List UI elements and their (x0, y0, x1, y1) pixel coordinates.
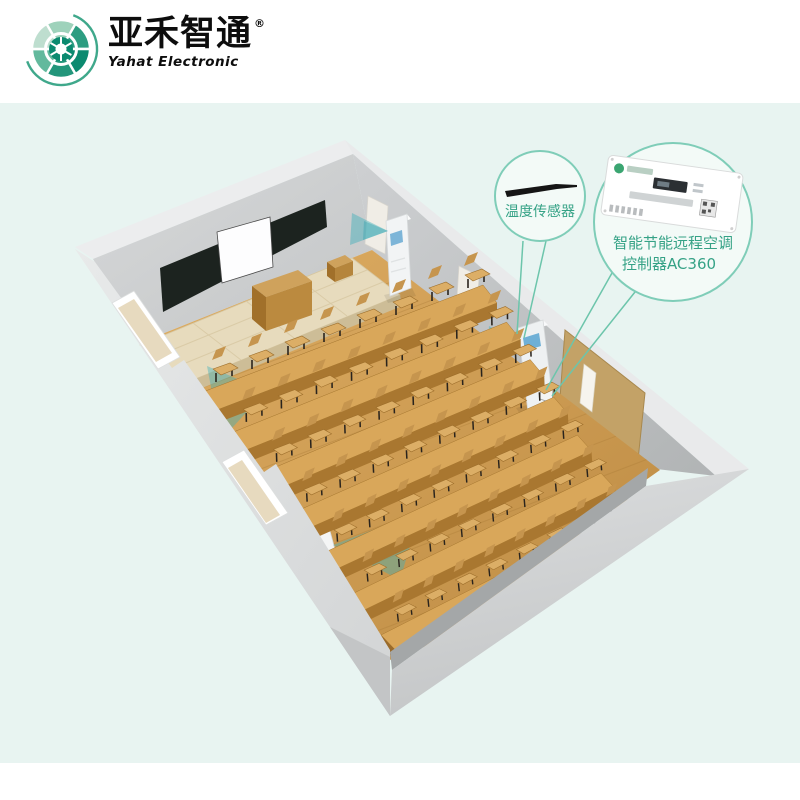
brand-logo-icon (18, 6, 104, 92)
callout-label-temperature-sensor: 温度传感器 (505, 203, 575, 220)
classroom-illustration: 温度传感器 (0, 0, 800, 800)
brand-logo-text: 亚禾智通® Yahat Electronic (108, 6, 266, 70)
page: 亚禾智通® Yahat Electronic (0, 0, 800, 800)
brand-name-en: Yahat Electronic (108, 54, 266, 70)
callout-label-ac-controller-line2: 控制器AC360 (622, 255, 716, 273)
brand-name-cn: 亚禾智通 (108, 14, 252, 54)
callout-ac-controller: 智能节能远程空调 控制器AC360 (594, 143, 752, 301)
registered-trademark: ® (254, 17, 266, 30)
callout-temperature-sensor: 温度传感器 (495, 151, 585, 241)
controller-qr-code (699, 199, 717, 217)
logo-center-dot (56, 44, 67, 55)
brand-logo: 亚禾智通® Yahat Electronic (18, 6, 266, 92)
callout-label-ac-controller-line1: 智能节能远程空调 (613, 234, 733, 252)
